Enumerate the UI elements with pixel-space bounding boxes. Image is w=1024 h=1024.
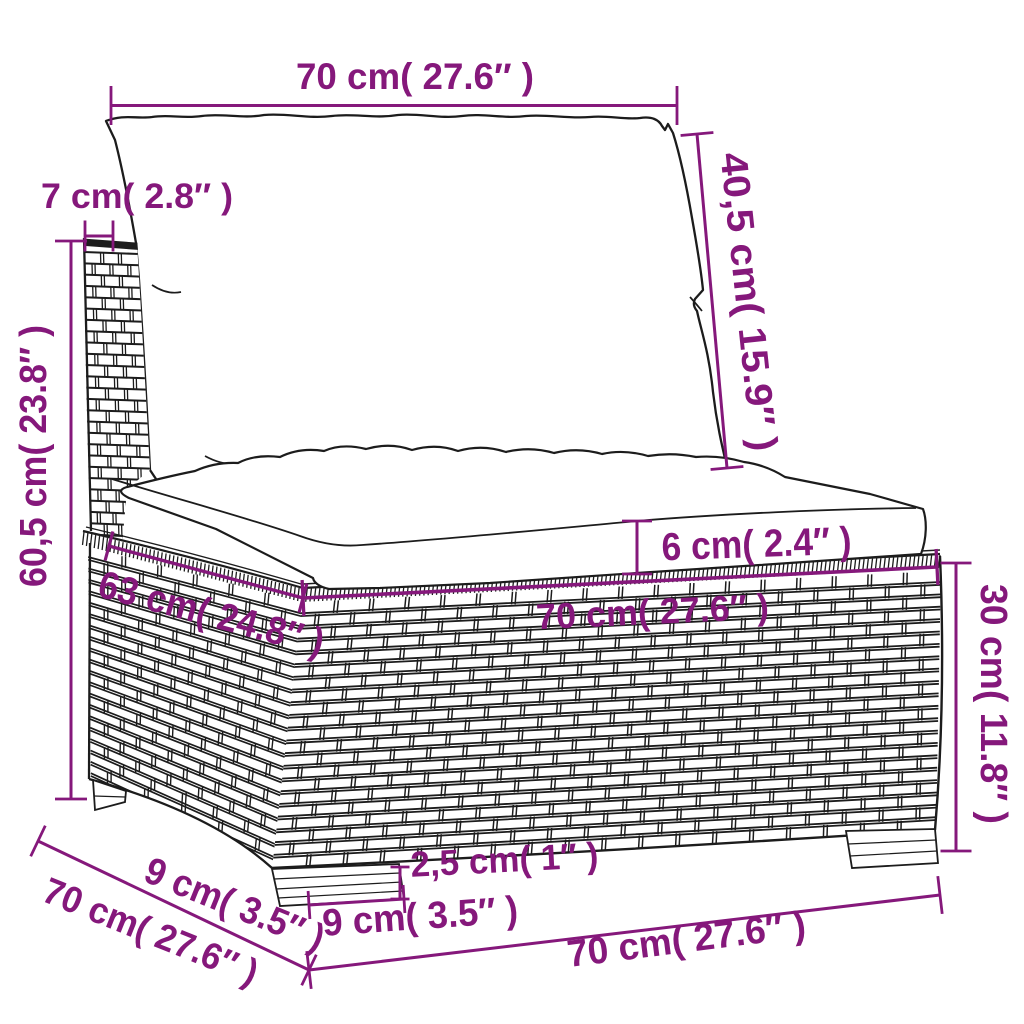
svg-text:60,5 cm( 23.8″ ): 60,5 cm( 23.8″ ) bbox=[13, 325, 55, 587]
svg-text:7 cm( 2.8″ ): 7 cm( 2.8″ ) bbox=[41, 177, 233, 216]
svg-text:6 cm( 2.4″ ): 6 cm( 2.4″ ) bbox=[661, 520, 852, 570]
svg-text:30 cm( 11.8″ ): 30 cm( 11.8″ ) bbox=[972, 584, 1014, 824]
svg-text:70 cm( 27.6″ ): 70 cm( 27.6″ ) bbox=[296, 56, 534, 97]
